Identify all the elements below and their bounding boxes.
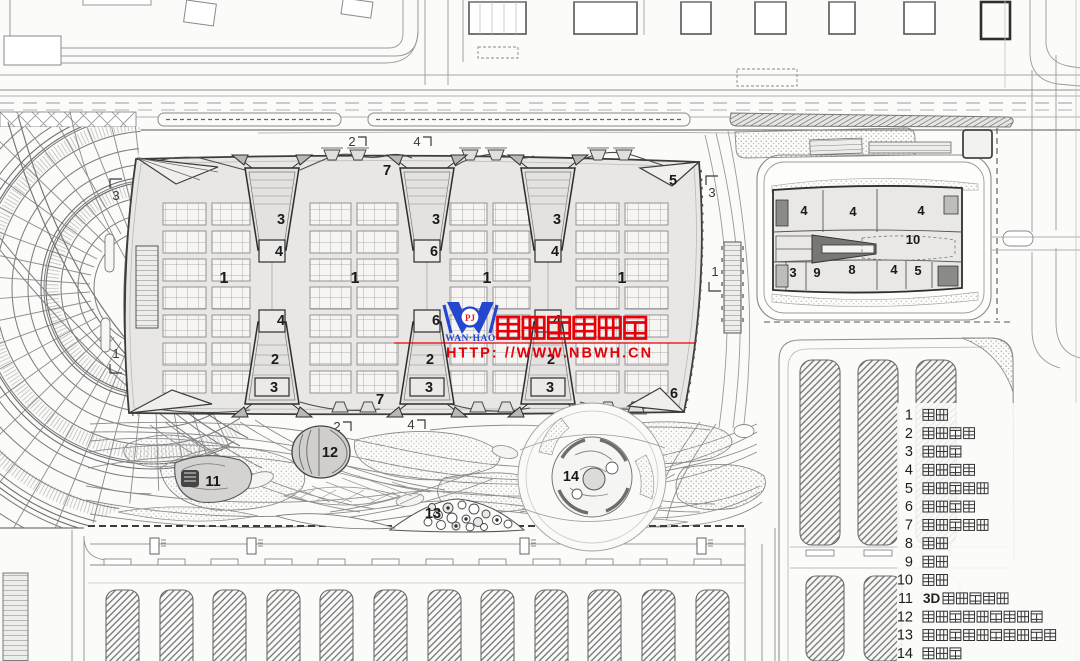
svg-text:4: 4: [551, 244, 559, 260]
svg-text:6: 6: [432, 313, 440, 329]
svg-text:7: 7: [905, 518, 913, 534]
svg-text:10: 10: [897, 573, 913, 589]
svg-text:11: 11: [205, 474, 220, 490]
svg-text:3: 3: [270, 380, 278, 396]
svg-text:8: 8: [905, 536, 913, 552]
svg-text:4: 4: [407, 417, 414, 432]
svg-text:9: 9: [905, 554, 913, 570]
svg-text:3: 3: [425, 380, 433, 396]
svg-text:7: 7: [376, 391, 384, 408]
svg-text:PJ: PJ: [465, 313, 475, 323]
svg-text:1: 1: [483, 270, 492, 287]
svg-text:3: 3: [708, 185, 715, 200]
svg-text:1: 1: [711, 264, 718, 279]
svg-text:12: 12: [897, 609, 913, 625]
svg-text:1: 1: [220, 270, 229, 287]
svg-text:3: 3: [432, 212, 440, 228]
svg-text:12: 12: [322, 445, 338, 461]
svg-text:2: 2: [426, 352, 434, 368]
svg-text:4: 4: [905, 463, 913, 479]
svg-text:3D: 3D: [923, 591, 941, 606]
svg-text:1: 1: [905, 408, 913, 424]
svg-text:1: 1: [618, 270, 627, 287]
svg-text:HTTP: //WWW.NBWH.CN: HTTP: //WWW.NBWH.CN: [446, 346, 653, 362]
svg-text:13: 13: [425, 506, 441, 522]
svg-text:10: 10: [906, 232, 920, 247]
svg-text:4: 4: [800, 203, 808, 218]
svg-text:7: 7: [383, 162, 391, 179]
svg-text:6: 6: [430, 244, 438, 260]
svg-text:14: 14: [897, 646, 913, 661]
svg-text:3: 3: [789, 265, 796, 280]
svg-text:5: 5: [914, 263, 921, 278]
svg-text:3: 3: [112, 188, 119, 203]
svg-text:1: 1: [112, 346, 119, 361]
svg-text:3: 3: [277, 212, 285, 228]
svg-text:4: 4: [413, 134, 420, 149]
svg-text:4: 4: [890, 262, 898, 277]
svg-text:2: 2: [905, 426, 913, 442]
svg-text:5: 5: [905, 481, 913, 497]
svg-text:4: 4: [849, 204, 857, 219]
svg-text:6: 6: [905, 499, 913, 515]
svg-text:8: 8: [848, 262, 855, 277]
svg-text:4: 4: [275, 244, 283, 260]
svg-text:4: 4: [277, 313, 285, 329]
svg-text:2: 2: [348, 134, 355, 149]
svg-text:3: 3: [546, 380, 554, 396]
svg-text:13: 13: [897, 628, 913, 644]
svg-text:11: 11: [898, 591, 913, 607]
svg-text:5: 5: [669, 173, 677, 189]
svg-text:4: 4: [917, 203, 925, 218]
svg-text:9: 9: [813, 265, 820, 280]
svg-text:3: 3: [905, 444, 913, 460]
svg-text:6: 6: [670, 386, 678, 402]
svg-text:14: 14: [563, 469, 579, 485]
svg-text:3: 3: [553, 212, 561, 228]
svg-text:2: 2: [271, 352, 279, 368]
svg-text:1: 1: [351, 270, 360, 287]
